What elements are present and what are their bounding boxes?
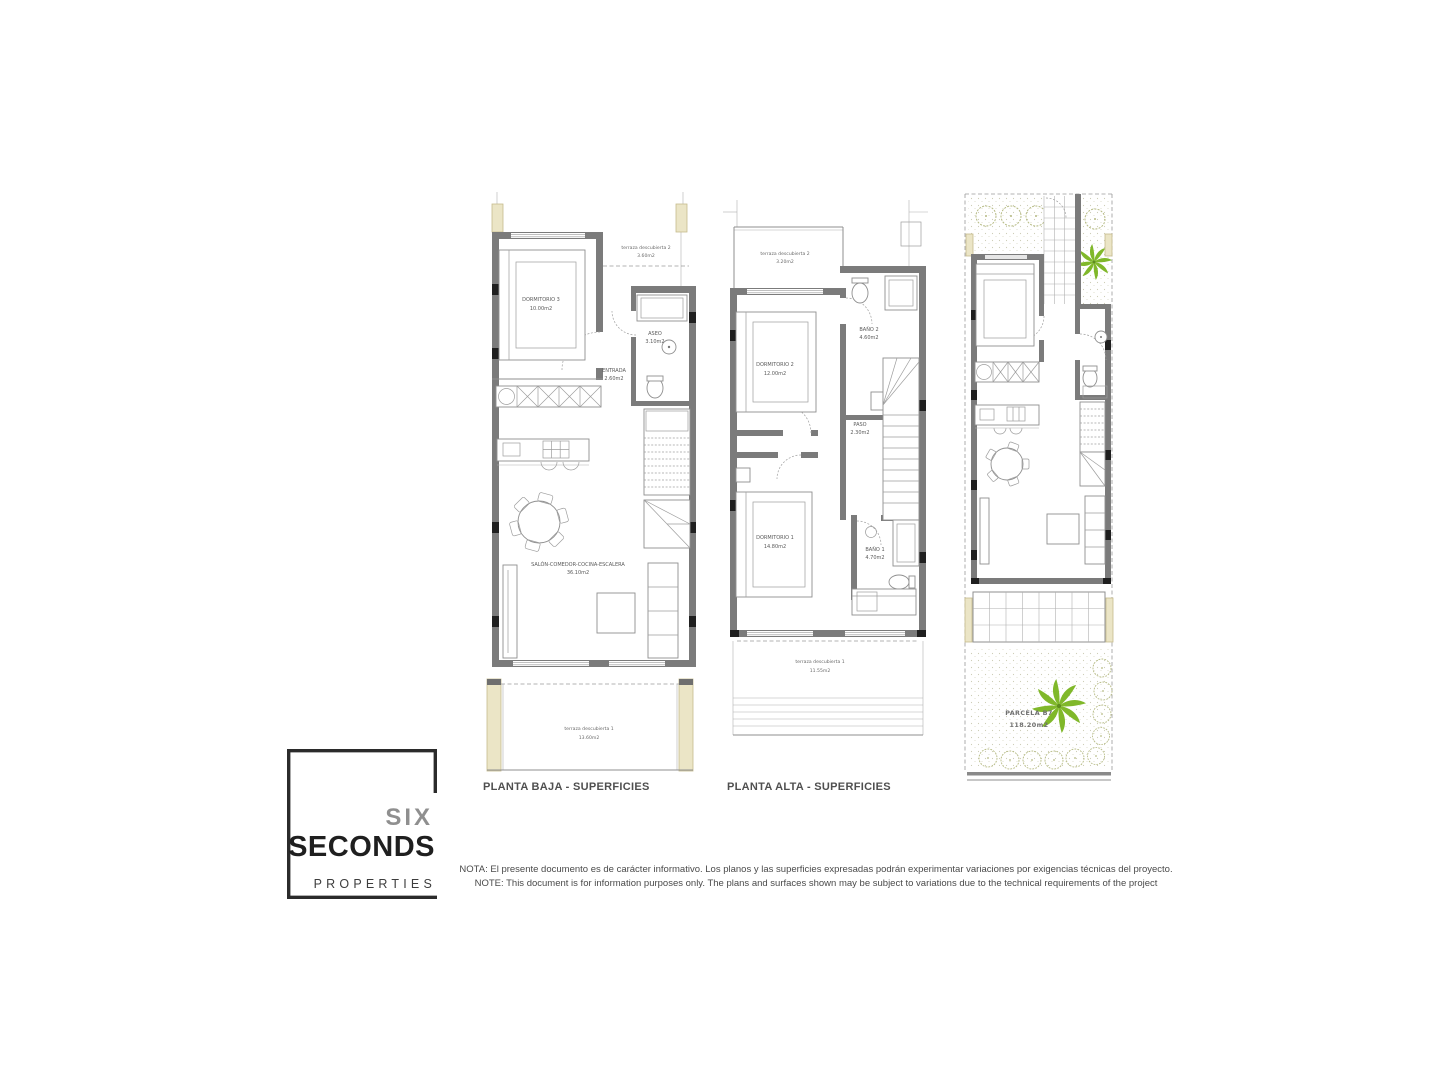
dining-table [985, 442, 1029, 487]
kitchen-island [497, 439, 589, 470]
room-area-dormitorio3: 10.00m2 [530, 306, 552, 312]
parcela-area: 118.20m2 [1010, 721, 1049, 729]
disclaimer-line-en: NOTE: This document is for information p… [436, 877, 1196, 891]
room-area-entrada: 2.60m2 [604, 376, 623, 382]
room-label-dormitorio1: DORMITORIO 1 [756, 535, 794, 541]
room-area-bano2: 4.60m2 [859, 335, 878, 341]
room-area-paso: 2.30m2 [850, 430, 869, 436]
room-area-terraza1: 11.55m2 [810, 668, 831, 674]
staircase [644, 409, 690, 548]
staircase [883, 358, 919, 520]
dining-table [509, 492, 569, 552]
garden-bottom: PARCELA B7 118.20m2 [969, 648, 1112, 769]
pergola-grid [973, 592, 1105, 642]
plot-boundary [723, 200, 928, 266]
plan-title-planta-baja: PLANTA BAJA - SUPERFICIES [483, 781, 650, 793]
bed-dormitorio1 [736, 468, 812, 597]
floor-plan-planta-baja: terraza descubierta 2 3.60m2 DORMITORIO … [483, 192, 703, 782]
bedroom-furniture [975, 264, 1039, 382]
room-label-salon: SALÓN-COMEDOR-COCINA-ESCALERA [531, 561, 625, 568]
logo-text-six: SIX [385, 804, 433, 831]
room-area-bano1: 4.70m2 [865, 555, 884, 561]
room-area-aseo: 3.10m2 [645, 339, 664, 345]
walkway [1044, 194, 1081, 306]
room-label-dormitorio2: DORMITORIO 2 [756, 362, 794, 368]
disclaimer: NOTA: El presente documento es de caráct… [436, 863, 1196, 890]
room-area-terraza1: 13.60m2 [579, 735, 600, 741]
closet [852, 589, 916, 615]
living-furniture [980, 496, 1105, 564]
room-label-paso: PASO [853, 422, 866, 428]
logo-text-properties: PROPERTIES [314, 877, 436, 891]
bed-dormitorio3 [499, 250, 585, 360]
brochure-page: terraza descubierta 2 3.60m2 DORMITORIO … [0, 0, 1440, 1080]
disclaimer-line-es: NOTA: El presente documento es de caráct… [436, 863, 1196, 877]
room-label-dormitorio3: DORMITORIO 3 [522, 297, 560, 303]
room-label-bano2: BAÑO 2 [859, 326, 878, 333]
kitchen-island [975, 405, 1039, 434]
room-label-terraza2: terraza descubierta 2 [760, 251, 809, 257]
staircase [1080, 402, 1105, 486]
room-label-aseo: ASEO [648, 331, 662, 337]
plan-title-planta-alta: PLANTA ALTA - SUPERFICIES [727, 781, 891, 793]
room-label-terraza1: terraza descubierta 1 [564, 726, 613, 732]
aseo-fixtures [637, 295, 687, 398]
room-area-terraza2: 3.60m2 [637, 253, 655, 259]
terrace-bottom [733, 641, 923, 735]
room-area-salon: 36.10m2 [567, 570, 589, 576]
wardrobe [496, 386, 601, 407]
room-area-dormitorio1: 14.80m2 [764, 544, 786, 550]
room-label-entrada: ENTRADA [602, 368, 626, 374]
room-label-bano1: BAÑO 1 [865, 546, 884, 553]
sofas [503, 563, 678, 658]
floor-plan-planta-alta: terraza descubierta 2 3.20m2 BAÑO 2 4.60… [723, 200, 928, 785]
room-area-terraza2: 3.20m2 [776, 259, 794, 265]
six-seconds-properties-logo: SIX SECONDS PROPERTIES [287, 749, 437, 899]
fence-bottom [967, 772, 1111, 780]
site-plan-parcela: PARCELA B7 118.20m2 [963, 190, 1115, 788]
parcela-label: PARCELA B7 [1005, 709, 1053, 717]
bath-fixtures [1083, 331, 1107, 398]
room-area-dormitorio2: 12.00m2 [764, 371, 786, 377]
room-label-terraza2: terraza descubierta 2 [621, 245, 670, 251]
logo-text-seconds: SECONDS [288, 831, 435, 863]
room-label-terraza1: terraza descubierta 1 [795, 659, 844, 665]
terrace-top [734, 227, 843, 288]
